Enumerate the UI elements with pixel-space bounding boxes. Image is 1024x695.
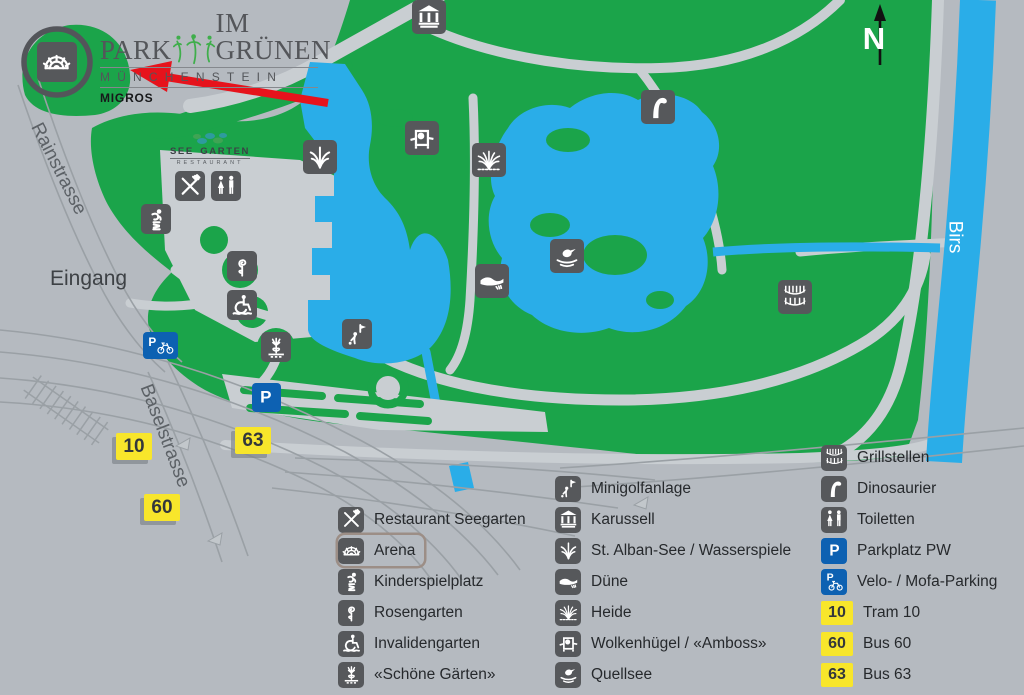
park-map-screenshot: PARK IM GRÜNEN MÜNCHENSTEIN MIGROS: [0, 0, 1024, 695]
svg-text:P: P: [829, 543, 839, 560]
legend-badge-63: 63: [821, 663, 853, 687]
brand-migros: MIGROS: [100, 91, 318, 105]
legend-item-duene: Düne: [555, 566, 628, 597]
legend-item-arena: Arena: [338, 535, 424, 566]
legend-item-karussell: Karussell: [555, 504, 655, 535]
seegarten-leaves-icon: [190, 132, 230, 145]
legend-item-minigolf: Minigolfanlage: [555, 473, 691, 504]
map-badge-10: 10: [116, 433, 152, 460]
legend-label: Minigolfanlage: [591, 480, 691, 498]
divider: [100, 67, 318, 68]
map-icon-duene: [475, 264, 509, 298]
legend-label: Wolkenhügel / «Amboss»: [591, 635, 766, 653]
wasserspiele-icon: [555, 538, 581, 564]
legend-label: Kinderspielplatz: [374, 573, 483, 591]
toiletten-icon: [821, 507, 847, 533]
restaurant-icon: [338, 507, 364, 533]
legend-item-velo-sq: PVelo- / Mofa-Parking: [821, 566, 997, 597]
legend-item-wolkenhuegel: Wolkenhügel / «Amboss»: [555, 628, 766, 659]
legend-item-wasserspiele: St. Alban-See / Wasserspiele: [555, 535, 791, 566]
map-icon-toiletten: [211, 171, 241, 201]
heide-icon: [555, 600, 581, 626]
dinosaurier-icon: [821, 476, 847, 502]
seegarten-garten: GARTEN: [200, 146, 250, 157]
legend-item-quellsee: Quellsee: [555, 659, 652, 690]
legend-label: «Schöne Gärten»: [374, 666, 496, 684]
quellsee-icon: [555, 662, 581, 688]
legend-label: Invalidengarten: [374, 635, 480, 653]
schoene-gaerten-icon: [338, 662, 364, 688]
duene-icon: [555, 569, 581, 595]
wolkenhuegel-icon: [555, 631, 581, 657]
karussell-icon: [555, 507, 581, 533]
svg-text:P: P: [260, 388, 271, 407]
legend-label: Velo- / Mofa-Parking: [857, 573, 997, 591]
grillstellen-icon: [821, 445, 847, 471]
title-im-gruenen: IM GRÜNEN: [216, 10, 332, 64]
map-icon-dinosaurier: [641, 90, 675, 124]
map-icon-velo: P: [143, 332, 178, 359]
legend-label: Grillstellen: [857, 449, 929, 467]
jumping-figures-icon: [173, 32, 215, 66]
map-icon-invalidengarten: [227, 290, 257, 320]
map-icon-parkplatz: P: [252, 383, 281, 412]
label-eingang: Eingang: [50, 267, 127, 291]
map-badge-63: 63: [235, 427, 271, 454]
legend-label: Heide: [591, 604, 632, 622]
legend-column-1: Restaurant SeegartenArenaKinderspielplat…: [338, 504, 526, 690]
map-icon-kinderspielplatz: [141, 204, 171, 234]
map-icon-minigolf: [342, 319, 372, 349]
legend-item-schoene-gaerten: «Schöne Gärten»: [338, 659, 496, 690]
legend-label: Bus 60: [863, 635, 911, 653]
legend-badge-10: 10: [821, 601, 853, 625]
rosengarten-icon: [338, 600, 364, 626]
seegarten-restaurant-logo: SEE GARTEN RESTAURANT: [170, 132, 250, 166]
map-icon-wolkenhuegel: [405, 121, 439, 155]
legend-column-2: MinigolfanlageKarussellSt. Alban-See / W…: [555, 473, 791, 690]
kinderspielplatz-icon: [338, 569, 364, 595]
divider: [170, 158, 250, 159]
seegarten-wordmark: SEE GARTEN: [170, 146, 250, 157]
legend-badge-60: 60: [821, 632, 853, 656]
legend-item-dinosaurier: Dinosaurier: [821, 473, 936, 504]
north-arrow-icon: N: [856, 2, 900, 68]
title-park: PARK: [100, 37, 172, 64]
invalidengarten-icon: [338, 631, 364, 657]
svg-text:P: P: [148, 336, 156, 349]
divider: [100, 87, 318, 88]
legend-label: Restaurant Seegarten: [374, 511, 526, 529]
map-badge-60: 60: [144, 494, 180, 521]
legend-label: Karussell: [591, 511, 655, 529]
legend-column-3: GrillstellenDinosaurierToilettenPParkpla…: [821, 442, 997, 690]
arena-icon: [338, 538, 364, 564]
seegarten-see: SEE: [170, 146, 194, 157]
legend-label: Rosengarten: [374, 604, 463, 622]
minigolf-icon: [555, 476, 581, 502]
legend-label: Bus 63: [863, 666, 911, 684]
label-river-birs: Birs: [943, 221, 965, 254]
velo-sq-icon: P: [821, 569, 847, 595]
legend-label: Quellsee: [591, 666, 652, 684]
map-icon-schoene-gaerten: [261, 332, 291, 362]
map-icon-quellsee: [550, 239, 584, 273]
map-icon-grillstellen: [778, 280, 812, 314]
legend-item-kinderspielplatz: Kinderspielplatz: [338, 566, 483, 597]
legend-item-badge-10: 10Tram 10: [821, 597, 920, 628]
legend-item-heide: Heide: [555, 597, 632, 628]
map-icon-restaurant: [175, 171, 205, 201]
map-icon-heide: [472, 143, 506, 177]
legend-item-grillstellen: Grillstellen: [821, 442, 929, 473]
subtitle-muenchenstein: MÜNCHENSTEIN: [100, 70, 318, 84]
legend-item-badge-63: 63Bus 63: [821, 659, 911, 690]
legend-item-badge-60: 60Bus 60: [821, 628, 911, 659]
legend-label: Dinosaurier: [857, 480, 936, 498]
legend-label: Parkplatz PW: [857, 542, 951, 560]
legend-item-parkplatz: PParkplatz PW: [821, 535, 951, 566]
map-icon-arena: [37, 42, 77, 82]
park-logo-block: PARK IM GRÜNEN MÜNCHENSTEIN MIGROS: [100, 10, 318, 105]
legend-label: Düne: [591, 573, 628, 591]
legend-label: Tram 10: [863, 604, 920, 622]
legend-label: Toiletten: [857, 511, 915, 529]
north-letter: N: [863, 21, 885, 56]
map-icon-rosengarten: [227, 251, 257, 281]
parkplatz-icon: P: [821, 538, 847, 564]
legend-label: Arena: [374, 542, 415, 560]
page-title: PARK IM GRÜNEN: [100, 10, 318, 64]
map-icon-wasserspiele: [303, 140, 337, 174]
legend-label: St. Alban-See / Wasserspiele: [591, 542, 791, 560]
legend-item-invalidengarten: Invalidengarten: [338, 628, 480, 659]
legend-item-restaurant: Restaurant Seegarten: [338, 504, 526, 535]
map-icon-karussell: [412, 0, 446, 34]
legend-item-toiletten: Toiletten: [821, 504, 915, 535]
seegarten-restaurant-label: RESTAURANT: [170, 160, 250, 166]
legend-item-rosengarten: Rosengarten: [338, 597, 463, 628]
